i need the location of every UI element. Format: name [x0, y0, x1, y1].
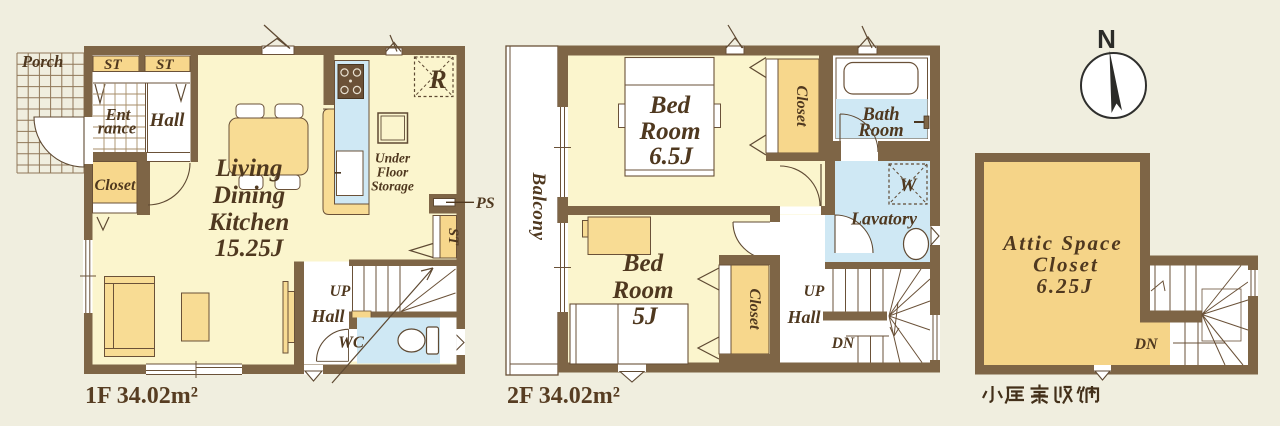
svg-text:Floor: Floor	[376, 165, 409, 180]
svg-text:Attic Space: Attic Space	[1001, 231, 1122, 255]
svg-text:ST: ST	[445, 228, 461, 246]
svg-text:2F 34.02m²: 2F 34.02m²	[507, 383, 620, 409]
svg-text:Lavatory: Lavatory	[850, 209, 918, 229]
svg-text:Storage: Storage	[371, 179, 414, 194]
svg-text:15.25J: 15.25J	[215, 235, 285, 262]
svg-text:Hall: Hall	[786, 307, 820, 327]
svg-text:ST: ST	[156, 57, 174, 73]
svg-text:Kitchen: Kitchen	[208, 209, 290, 236]
svg-text:1F 34.02m²: 1F 34.02m²	[85, 383, 198, 409]
svg-text:DN: DN	[1133, 336, 1159, 353]
svg-text:PS: PS	[475, 195, 495, 212]
svg-text:ST: ST	[104, 57, 122, 73]
svg-text:Closet: Closet	[95, 177, 136, 194]
svg-text:Porch: Porch	[21, 52, 63, 71]
svg-text:6.25J: 6.25J	[1036, 274, 1093, 298]
svg-text:6.5J: 6.5J	[649, 143, 694, 170]
svg-text:Hall: Hall	[149, 110, 186, 131]
svg-text:Hall: Hall	[310, 306, 344, 326]
svg-text:rance: rance	[98, 119, 137, 138]
svg-text:Bed: Bed	[622, 250, 664, 277]
svg-text:Dining: Dining	[212, 182, 285, 209]
svg-text:UP: UP	[804, 283, 825, 300]
svg-text:5J: 5J	[633, 303, 660, 330]
svg-text:Closet: Closet	[746, 289, 763, 330]
svg-text:Under: Under	[375, 151, 411, 166]
svg-text:N: N	[1097, 24, 1116, 54]
svg-text:DN: DN	[831, 335, 855, 352]
svg-text:Closet: Closet	[793, 86, 810, 127]
svg-text:Closet: Closet	[1033, 253, 1099, 277]
svg-text:W: W	[900, 175, 918, 196]
svg-text:Room: Room	[611, 277, 673, 304]
svg-text:UP: UP	[330, 283, 351, 300]
svg-text:Bed: Bed	[649, 92, 691, 119]
svg-text:R: R	[428, 65, 446, 94]
svg-text:Room: Room	[638, 118, 700, 145]
svg-text:Room: Room	[857, 121, 903, 141]
svg-text:Living: Living	[215, 155, 283, 182]
svg-text:WC: WC	[338, 333, 365, 352]
svg-text:Balcony: Balcony	[528, 172, 549, 241]
